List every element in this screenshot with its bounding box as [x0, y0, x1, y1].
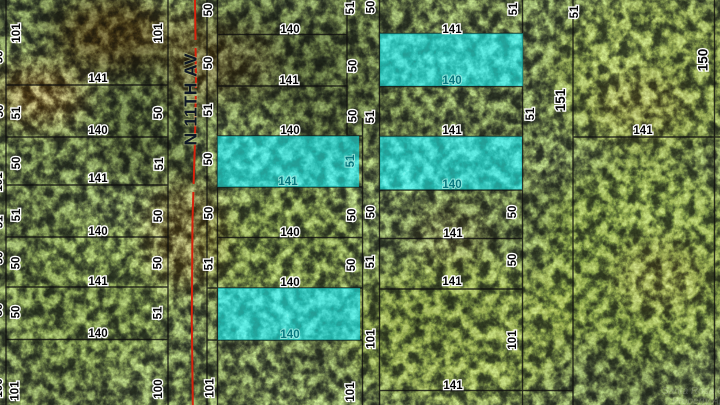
svg-text:50: 50: [203, 57, 215, 70]
svg-text:50: 50: [11, 306, 23, 319]
svg-text:51: 51: [569, 5, 581, 18]
svg-text:50: 50: [11, 157, 23, 170]
svg-text:51: 51: [525, 107, 537, 120]
svg-text:140: 140: [442, 75, 461, 87]
svg-text:101: 101: [507, 330, 519, 350]
svg-text:50: 50: [204, 207, 216, 220]
svg-text:50: 50: [153, 107, 165, 120]
svg-text:140: 140: [280, 277, 299, 289]
svg-text:141: 141: [278, 176, 298, 188]
svg-text:141: 141: [88, 173, 108, 185]
svg-text:50: 50: [153, 210, 165, 223]
svg-text:51: 51: [204, 257, 216, 270]
svg-text:Property Appraiser: Property Appraiser: [672, 396, 720, 405]
svg-text:50: 50: [507, 206, 519, 219]
svg-text:100: 100: [153, 379, 165, 398]
svg-text:141: 141: [279, 75, 299, 87]
svg-text:50: 50: [203, 153, 215, 166]
svg-text:101: 101: [10, 381, 22, 401]
svg-text:50: 50: [0, 252, 6, 265]
svg-text:51: 51: [0, 215, 6, 228]
svg-text:50: 50: [347, 209, 359, 222]
svg-text:101: 101: [153, 23, 165, 43]
svg-text:140: 140: [88, 226, 107, 238]
svg-text:50: 50: [366, 206, 378, 219]
svg-text:51: 51: [11, 106, 23, 119]
svg-text:50: 50: [0, 105, 6, 118]
svg-text:141: 141: [442, 276, 462, 288]
svg-text:100: 100: [0, 378, 5, 397]
svg-text:51: 51: [365, 110, 377, 123]
svg-text:101: 101: [0, 172, 5, 192]
svg-text:141: 141: [443, 228, 463, 240]
svg-text:51: 51: [154, 157, 166, 170]
svg-text:51: 51: [345, 1, 357, 14]
svg-text:51: 51: [365, 255, 377, 268]
svg-text:N 11TH AV: N 11TH AV: [181, 53, 201, 146]
svg-text:141: 141: [443, 380, 463, 392]
svg-text:150: 150: [696, 49, 711, 72]
svg-text:50: 50: [346, 259, 358, 272]
svg-text:51: 51: [153, 306, 165, 319]
svg-text:51: 51: [345, 154, 357, 167]
svg-text:141: 141: [88, 276, 108, 288]
svg-text:51: 51: [203, 103, 215, 116]
svg-text:140: 140: [280, 227, 299, 239]
svg-text:140: 140: [88, 328, 107, 340]
svg-text:151: 151: [553, 88, 568, 111]
svg-text:50: 50: [0, 51, 6, 64]
svg-text:51: 51: [11, 208, 23, 221]
svg-text:141: 141: [442, 24, 462, 36]
svg-text:50: 50: [203, 4, 215, 17]
svg-text:101: 101: [205, 378, 217, 398]
svg-text:101: 101: [366, 329, 378, 349]
svg-text:141: 141: [442, 125, 462, 137]
svg-text:50: 50: [348, 110, 360, 123]
svg-text:140: 140: [280, 329, 299, 341]
svg-text:50: 50: [11, 257, 23, 270]
svg-text:50: 50: [507, 254, 519, 267]
svg-text:50: 50: [366, 1, 378, 14]
svg-text:140: 140: [280, 125, 299, 137]
svg-text:141: 141: [633, 125, 653, 137]
svg-text:140: 140: [280, 24, 299, 36]
svg-text:50: 50: [348, 60, 360, 73]
svg-text:101: 101: [11, 23, 23, 43]
svg-text:101: 101: [345, 382, 357, 402]
svg-text:51: 51: [508, 2, 520, 15]
svg-text:140: 140: [88, 125, 107, 137]
svg-text:140: 140: [442, 179, 461, 191]
svg-text:141: 141: [88, 73, 108, 85]
svg-text:50: 50: [0, 304, 5, 317]
svg-text:50: 50: [153, 257, 165, 270]
